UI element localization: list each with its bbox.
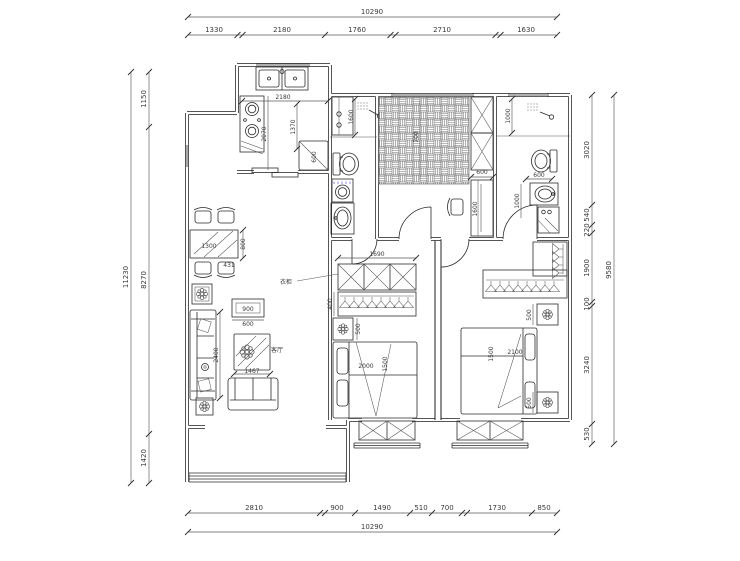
dim-shower2: 1000 <box>505 108 512 123</box>
dim-bottom-seg-5: 1730 <box>488 504 506 512</box>
desk-area: 1600 <box>448 180 494 236</box>
dim-top-seg-4: 1630 <box>517 26 535 34</box>
dim-tv-depth: 600 <box>242 321 254 328</box>
dim-table-width: 800 <box>240 238 247 250</box>
dim-chair: 431 <box>223 262 235 269</box>
dim-nightstand2-top: 500 <box>526 309 533 321</box>
dim-nightstand2-bottom: 500 <box>526 397 533 409</box>
sofa: 2400 <box>190 309 223 401</box>
dim-right-seg-3: 1900 <box>583 259 591 277</box>
dim-bottom-seg-0: 2810 <box>245 504 263 512</box>
toilet-1-icon <box>333 153 359 175</box>
bay-window-1 <box>354 421 420 448</box>
dim-fridge: 600 <box>311 151 318 163</box>
dim-left-seg-2: 1420 <box>140 449 148 467</box>
dim-top-seg-1: 2180 <box>273 26 291 34</box>
coffee-table: 1467 客厅 <box>231 334 283 377</box>
shower-head-2-icon <box>527 103 553 119</box>
dim-left-seg-0: 1150 <box>140 90 148 108</box>
gas-stove <box>240 96 264 154</box>
nightstand-1: 500 <box>333 318 362 340</box>
dim-chain-left: 11230 1150 8270 1420 <box>122 69 152 486</box>
dim-basin2: 1000 <box>514 193 521 208</box>
walls <box>187 65 570 482</box>
tv-cabinet: 900 600 <box>232 299 264 328</box>
entry-hall: 700 <box>379 97 469 184</box>
basin-2-icon <box>530 183 558 205</box>
dim-chain-bottom: 10290 2810 900 1490 510 700 1730 850 <box>185 504 560 535</box>
dim-right-total: 9580 <box>605 261 613 279</box>
dim-kitchen-counter: 1370 <box>290 119 297 134</box>
dim-bottom-seg-1: 900 <box>330 504 343 512</box>
hall-closet: 600 <box>468 97 496 180</box>
dim-bottom-total: 10290 <box>361 523 383 531</box>
bay-window-2 <box>452 421 528 448</box>
living-room-label: 客厅 <box>271 346 283 354</box>
toilet-2-icon <box>532 150 558 172</box>
wardrobe-note-label: 衣柜 <box>280 278 292 286</box>
dining-set: 1300 800 431 <box>190 208 247 278</box>
dim-wardrobe1-width: 1690 <box>369 251 384 258</box>
office-chair-icon <box>448 198 464 216</box>
dim-left-seg-1: 8270 <box>140 271 148 289</box>
bathroom-master: 1000 600 1000 <box>497 96 570 233</box>
dim-right-seg-2: 220 <box>583 223 591 236</box>
dim-wardrobe1-depth: 400 <box>327 298 334 310</box>
nightstand-2-bottom: 500 <box>526 392 558 413</box>
dim-toilet2: 600 <box>533 172 545 179</box>
dim-bed2-width: 1500 <box>488 346 495 361</box>
dim-tv-width: 900 <box>242 306 254 313</box>
parquet-area <box>379 97 469 184</box>
dim-right-seg-0: 3020 <box>583 141 591 159</box>
bed-1: 2000 1500 <box>333 342 417 418</box>
dim-chain-top: 10290 1330 2180 1760 2710 1630 <box>185 8 560 38</box>
bedroom-middle: 1690 衣柜 400 500 2000 1500 <box>280 251 419 418</box>
nightstand-2-top: 500 <box>526 304 558 325</box>
dim-top-total: 10290 <box>361 8 383 16</box>
dim-left-total: 11230 <box>122 266 130 288</box>
dim-bed1-width: 1500 <box>382 356 389 371</box>
bathroom-small: 1600 <box>330 96 382 234</box>
kitchen-sink <box>256 67 308 90</box>
loveseat <box>228 378 278 410</box>
dim-desk-length: 1600 <box>472 201 479 216</box>
dim-nightstand1: 500 <box>355 323 362 335</box>
dim-coffee-table: 1467 <box>244 368 259 375</box>
dim-top-seg-0: 1330 <box>205 26 223 34</box>
dim-sofa: 2400 <box>213 347 220 362</box>
washing-machine-icon <box>332 179 353 202</box>
dim-right-seg-1: 540 <box>583 208 591 221</box>
dim-bed1-length: 2000 <box>358 363 373 370</box>
dim-bed2-length: 2100 <box>507 349 522 356</box>
dim-bottom-seg-3: 510 <box>414 504 427 512</box>
floor-plan-canvas: 10290 1330 2180 1760 2710 1630 10290 281… <box>0 0 740 561</box>
dim-right-seg-5: 3240 <box>583 356 591 374</box>
plant-2 <box>196 398 213 415</box>
dim-closet-width: 600 <box>476 169 488 176</box>
under-counter-washer-icon <box>538 207 559 233</box>
dim-top-seg-2: 1760 <box>348 26 366 34</box>
dim-right-seg-6: 530 <box>583 427 591 440</box>
dim-bottom-seg-2: 1490 <box>373 504 391 512</box>
dim-kitchen-depth: 2070 <box>261 126 268 141</box>
plant-1 <box>192 284 212 304</box>
dim-table-length: 1300 <box>201 243 216 250</box>
wardrobe-2 <box>483 242 567 298</box>
basin-1-icon <box>331 203 354 234</box>
bedroom-master: 500 500 1500 2100 <box>461 242 567 414</box>
dim-top-seg-3: 2710 <box>433 26 451 34</box>
dim-bottom-seg-6: 850 <box>537 504 550 512</box>
dim-bottom-seg-4: 700 <box>440 504 453 512</box>
wardrobe-1: 1690 衣柜 400 <box>280 251 419 316</box>
kitchen-sliding-door <box>252 168 278 173</box>
dim-right-seg-4: 100 <box>583 297 591 310</box>
dim-entry-hall: 700 <box>413 131 420 143</box>
dim-chain-right: 9580 3020 540 220 1900 100 3240 530 <box>583 92 617 447</box>
kitchen: 2180 1370 2070 600 <box>239 67 331 170</box>
dim-kitchen-width: 2180 <box>275 94 290 101</box>
dim-shower1: 1600 <box>348 109 355 124</box>
